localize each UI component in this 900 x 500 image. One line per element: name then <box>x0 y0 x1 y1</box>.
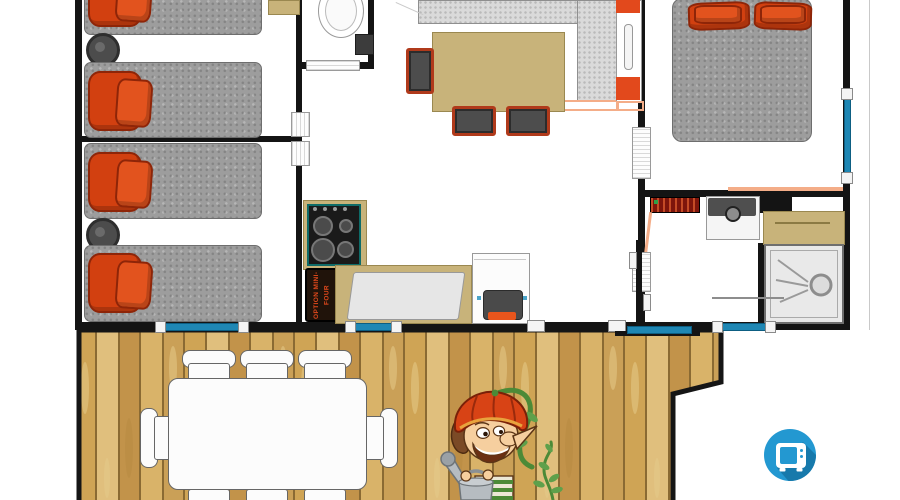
vanity-counter <box>763 211 845 245</box>
gardener-elf-mascot <box>433 386 583 500</box>
outdoor-table <box>168 378 367 490</box>
outdoor-chair-seat <box>188 489 230 500</box>
pillow <box>694 5 742 24</box>
washbasin-bowl <box>725 206 741 222</box>
worktop-right <box>577 0 620 102</box>
dining-table <box>432 32 565 112</box>
stove-flame <box>488 312 516 320</box>
window-frame-cap <box>238 321 249 333</box>
shower-symbol <box>764 244 840 320</box>
pillow <box>114 78 153 128</box>
window-kitchen <box>353 323 395 331</box>
wc-door <box>306 60 360 71</box>
wall-bath-partition <box>758 193 792 213</box>
stove-lid-line <box>474 259 526 260</box>
wall-left <box>75 0 82 330</box>
hob-knob <box>343 207 347 211</box>
hob-burner <box>337 241 354 258</box>
worktop-top <box>418 0 579 24</box>
floor-plan: OPTION MINI-FOUR <box>0 0 900 500</box>
window-frame-cap <box>841 172 853 184</box>
door-hinge-mark <box>643 294 651 311</box>
towel-bar <box>712 297 784 299</box>
master-bedroom-door <box>632 127 651 179</box>
bedroom1-door <box>291 112 310 137</box>
wc-cistern <box>355 34 374 55</box>
plan-boundary-line <box>869 0 870 330</box>
tv-icon <box>763 428 817 482</box>
dining-chair <box>406 48 434 94</box>
pillow <box>114 0 153 23</box>
window-frame-cap <box>712 321 723 333</box>
window-frame-cap <box>155 321 166 333</box>
outdoor-chair-seat <box>304 489 346 500</box>
window-frame-cap <box>765 321 776 333</box>
radiator-valve <box>654 200 658 204</box>
hob-knob <box>313 207 317 211</box>
outdoor-chair-seat <box>246 489 288 500</box>
sliding-bay-door <box>627 326 692 334</box>
mini-oven-option-cabinet: OPTION MINI-FOUR <box>305 268 339 322</box>
bedroom2-door <box>291 141 310 166</box>
pillow <box>760 5 806 24</box>
heater <box>616 101 644 111</box>
sink <box>347 272 466 320</box>
window-master-bedroom <box>844 98 851 174</box>
dining-chair <box>452 106 496 136</box>
window-bathroom <box>720 323 769 331</box>
door-hinge-mark <box>629 252 637 269</box>
pillow <box>114 260 153 310</box>
mini-oven-option-label: OPTION MINI-FOUR <box>312 270 333 320</box>
vanity-line <box>775 222 830 224</box>
window-bedroom <box>163 323 242 331</box>
stove-dot <box>477 296 481 300</box>
dining-chair <box>506 106 550 136</box>
pillow <box>114 159 153 209</box>
corner-cabinet <box>268 0 300 15</box>
hob-knob <box>323 207 327 211</box>
hob-burner <box>339 219 353 233</box>
hob-burner <box>311 238 335 262</box>
window-frame-cap <box>841 88 853 100</box>
fridge-top-accent <box>616 0 640 13</box>
door-frame-cap <box>527 320 545 332</box>
heater-line <box>728 187 843 191</box>
window-frame-cap <box>391 321 402 333</box>
hob-burner <box>313 216 333 236</box>
hob-knob <box>333 207 337 211</box>
fridge-bottom-accent <box>616 77 640 100</box>
window-frame-cap <box>345 321 356 333</box>
fridge-handle <box>624 24 633 70</box>
stove-dot <box>523 296 527 300</box>
